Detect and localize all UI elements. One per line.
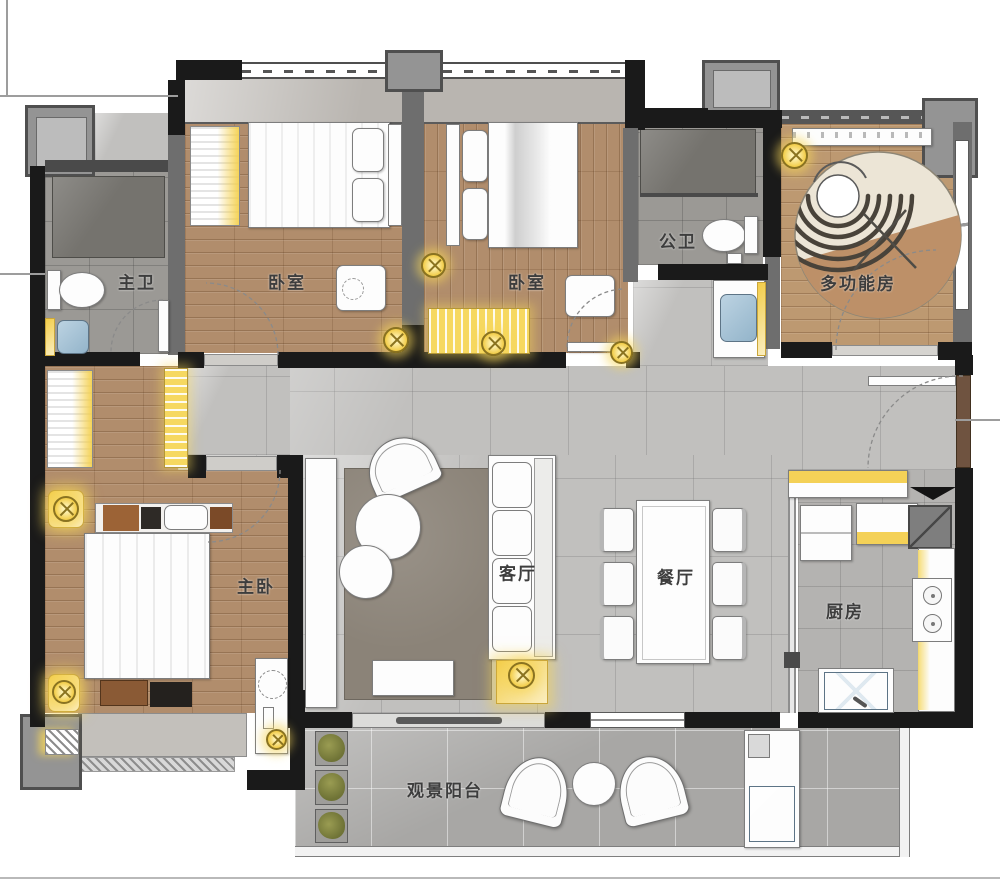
room-label-balcony: 观景阳台 [407,777,483,802]
guide-line [0,273,45,275]
room-label-bedroom-b: 卧室 [508,269,546,294]
guide-line [0,95,178,97]
room-label-public-bath: 公卫 [659,228,697,253]
room-label-bedroom-a: 卧室 [268,269,306,294]
room-label-master-bedroom: 主卧 [237,573,275,598]
door-swing-arcs [0,0,1000,884]
room-label-dining: 餐厅 [657,564,695,589]
room-label-living: 客厅 [499,560,537,585]
room-label-kitchen: 厨房 [826,598,864,623]
room-label-master-bath: 主卫 [118,269,156,294]
guide-line [955,419,1000,421]
guide-line [6,0,8,97]
room-label-multi-function: 多功能房 [820,270,896,295]
floor-plan: 主卫 卧室 卧室 公卫 多功能房 主卧 客厅 餐厅 厨房 观景阳台 [0,0,1000,884]
guide-line [0,877,1000,879]
